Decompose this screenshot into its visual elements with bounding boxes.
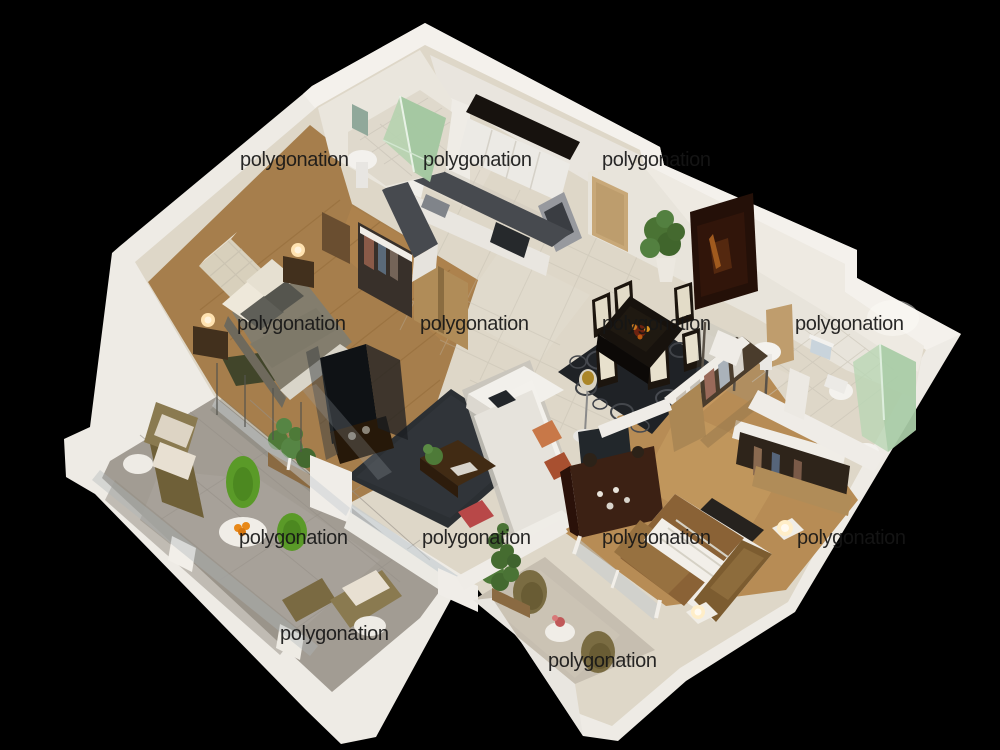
svg-text:polygonation: polygonation bbox=[423, 149, 532, 171]
svg-text:polygonation: polygonation bbox=[795, 313, 904, 335]
svg-text:polygonation: polygonation bbox=[239, 527, 348, 549]
svg-text:polygonation: polygonation bbox=[602, 313, 711, 335]
svg-text:polygonation: polygonation bbox=[240, 149, 349, 171]
svg-text:polygonation: polygonation bbox=[422, 527, 531, 549]
svg-text:polygonation: polygonation bbox=[602, 149, 711, 171]
svg-text:polygonation: polygonation bbox=[280, 623, 389, 645]
svg-text:polygonation: polygonation bbox=[237, 313, 346, 335]
svg-text:polygonation: polygonation bbox=[602, 527, 711, 549]
svg-text:polygonation: polygonation bbox=[420, 313, 529, 335]
svg-text:polygonation: polygonation bbox=[548, 650, 657, 672]
svg-text:polygonation: polygonation bbox=[797, 527, 906, 549]
